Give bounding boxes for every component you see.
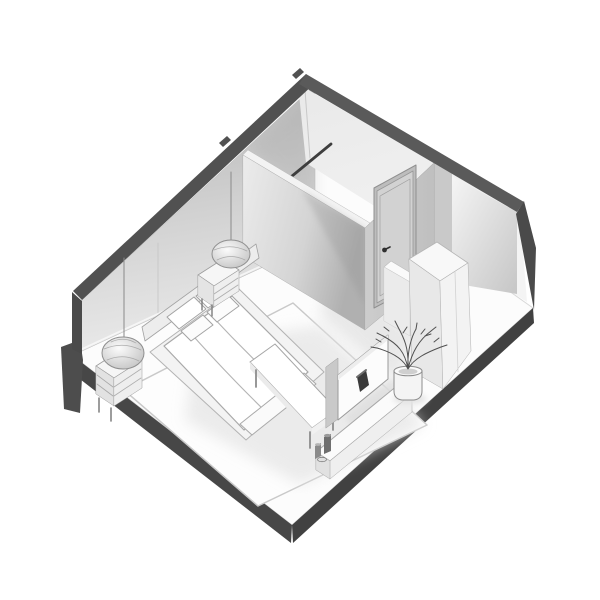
pendant-lamp-right: [212, 240, 250, 268]
axonometric-bedroom-rendering: [0, 0, 600, 600]
console-bowl: [318, 457, 327, 461]
console-vase-short-rim: [315, 443, 321, 446]
wall-cap-tab-1: [219, 136, 231, 147]
console-vase-tall-rim: [324, 434, 331, 437]
mirror-back-panel: [326, 358, 338, 428]
screenshot-canvas: [0, 0, 600, 600]
pendant-lamp-left: [102, 337, 144, 369]
wall-cap-tab-2: [292, 68, 304, 79]
northwest-wall-end-cut: [72, 292, 82, 354]
